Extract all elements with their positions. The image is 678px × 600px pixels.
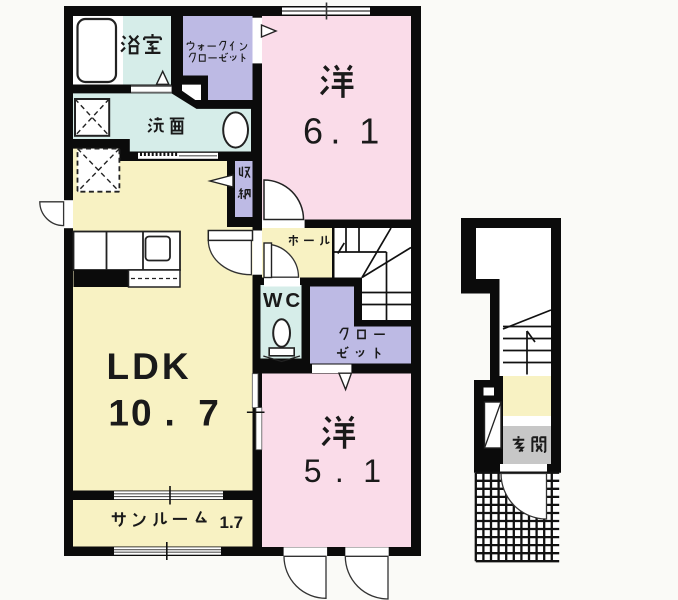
- svg-text:1.7: 1.7: [220, 513, 244, 532]
- svg-text:0: 0: [131, 393, 152, 434]
- svg-text:LDK: LDK: [107, 346, 192, 387]
- svg-text:1: 1: [359, 111, 379, 152]
- svg-text:WC: WC: [263, 289, 303, 312]
- svg-text:1: 1: [108, 393, 129, 434]
- svg-text:.: .: [165, 393, 175, 434]
- svg-text:1: 1: [363, 453, 381, 489]
- svg-text:.: .: [335, 453, 344, 489]
- svg-text:5: 5: [304, 453, 322, 489]
- svg-text:7: 7: [198, 393, 219, 434]
- svg-text:6: 6: [303, 111, 323, 152]
- svg-text:.: .: [330, 111, 340, 152]
